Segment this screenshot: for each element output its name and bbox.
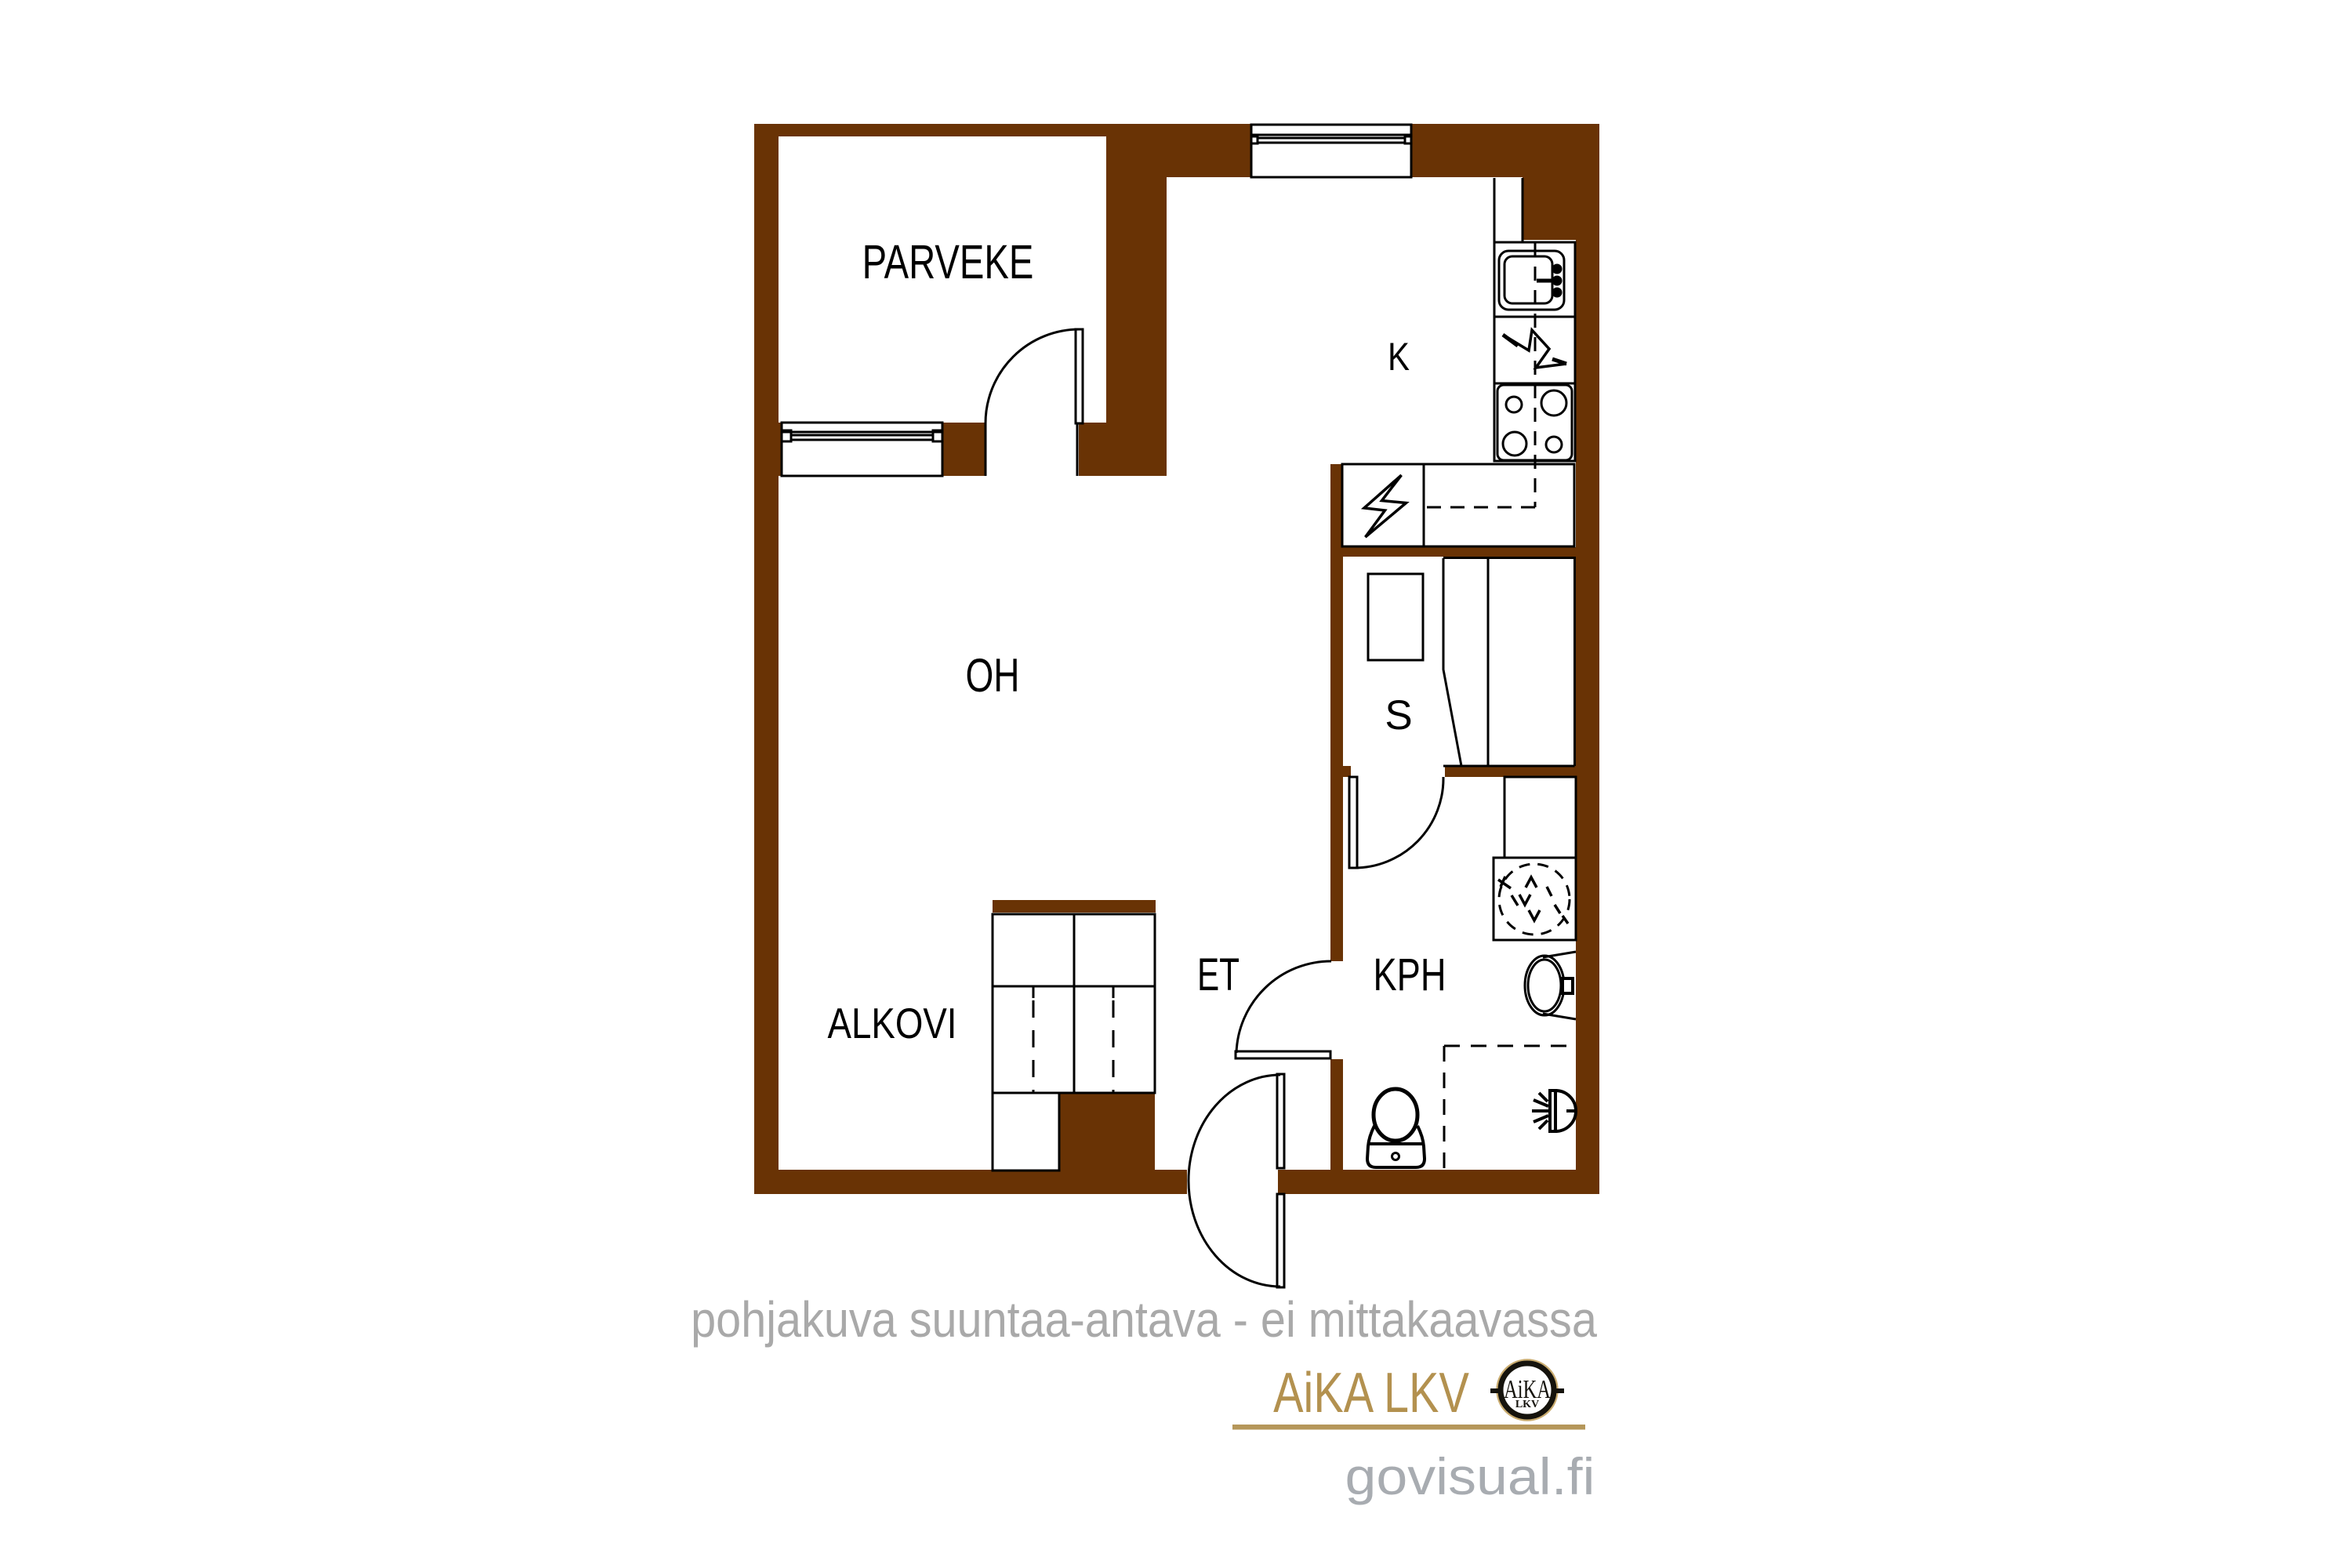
svg-text:govisual.fi: govisual.fi xyxy=(1345,1448,1595,1506)
svg-text:ET: ET xyxy=(1197,949,1240,1000)
svg-text:LKV: LKV xyxy=(1515,1399,1539,1410)
svg-text:OH: OH xyxy=(965,650,1019,702)
svg-text:KPH: KPH xyxy=(1374,950,1446,1001)
svg-text:AiKA LKV: AiKA LKV xyxy=(1273,1361,1469,1425)
svg-text:PARVEKE: PARVEKE xyxy=(862,235,1034,289)
svg-text:K: K xyxy=(1388,335,1410,379)
svg-text:ALKOVI: ALKOVI xyxy=(828,999,957,1047)
svg-text:pohjakuva suuntaa-antava - ei: pohjakuva suuntaa-antava - ei mittakaava… xyxy=(691,1291,1597,1347)
svg-text:S: S xyxy=(1385,692,1412,739)
